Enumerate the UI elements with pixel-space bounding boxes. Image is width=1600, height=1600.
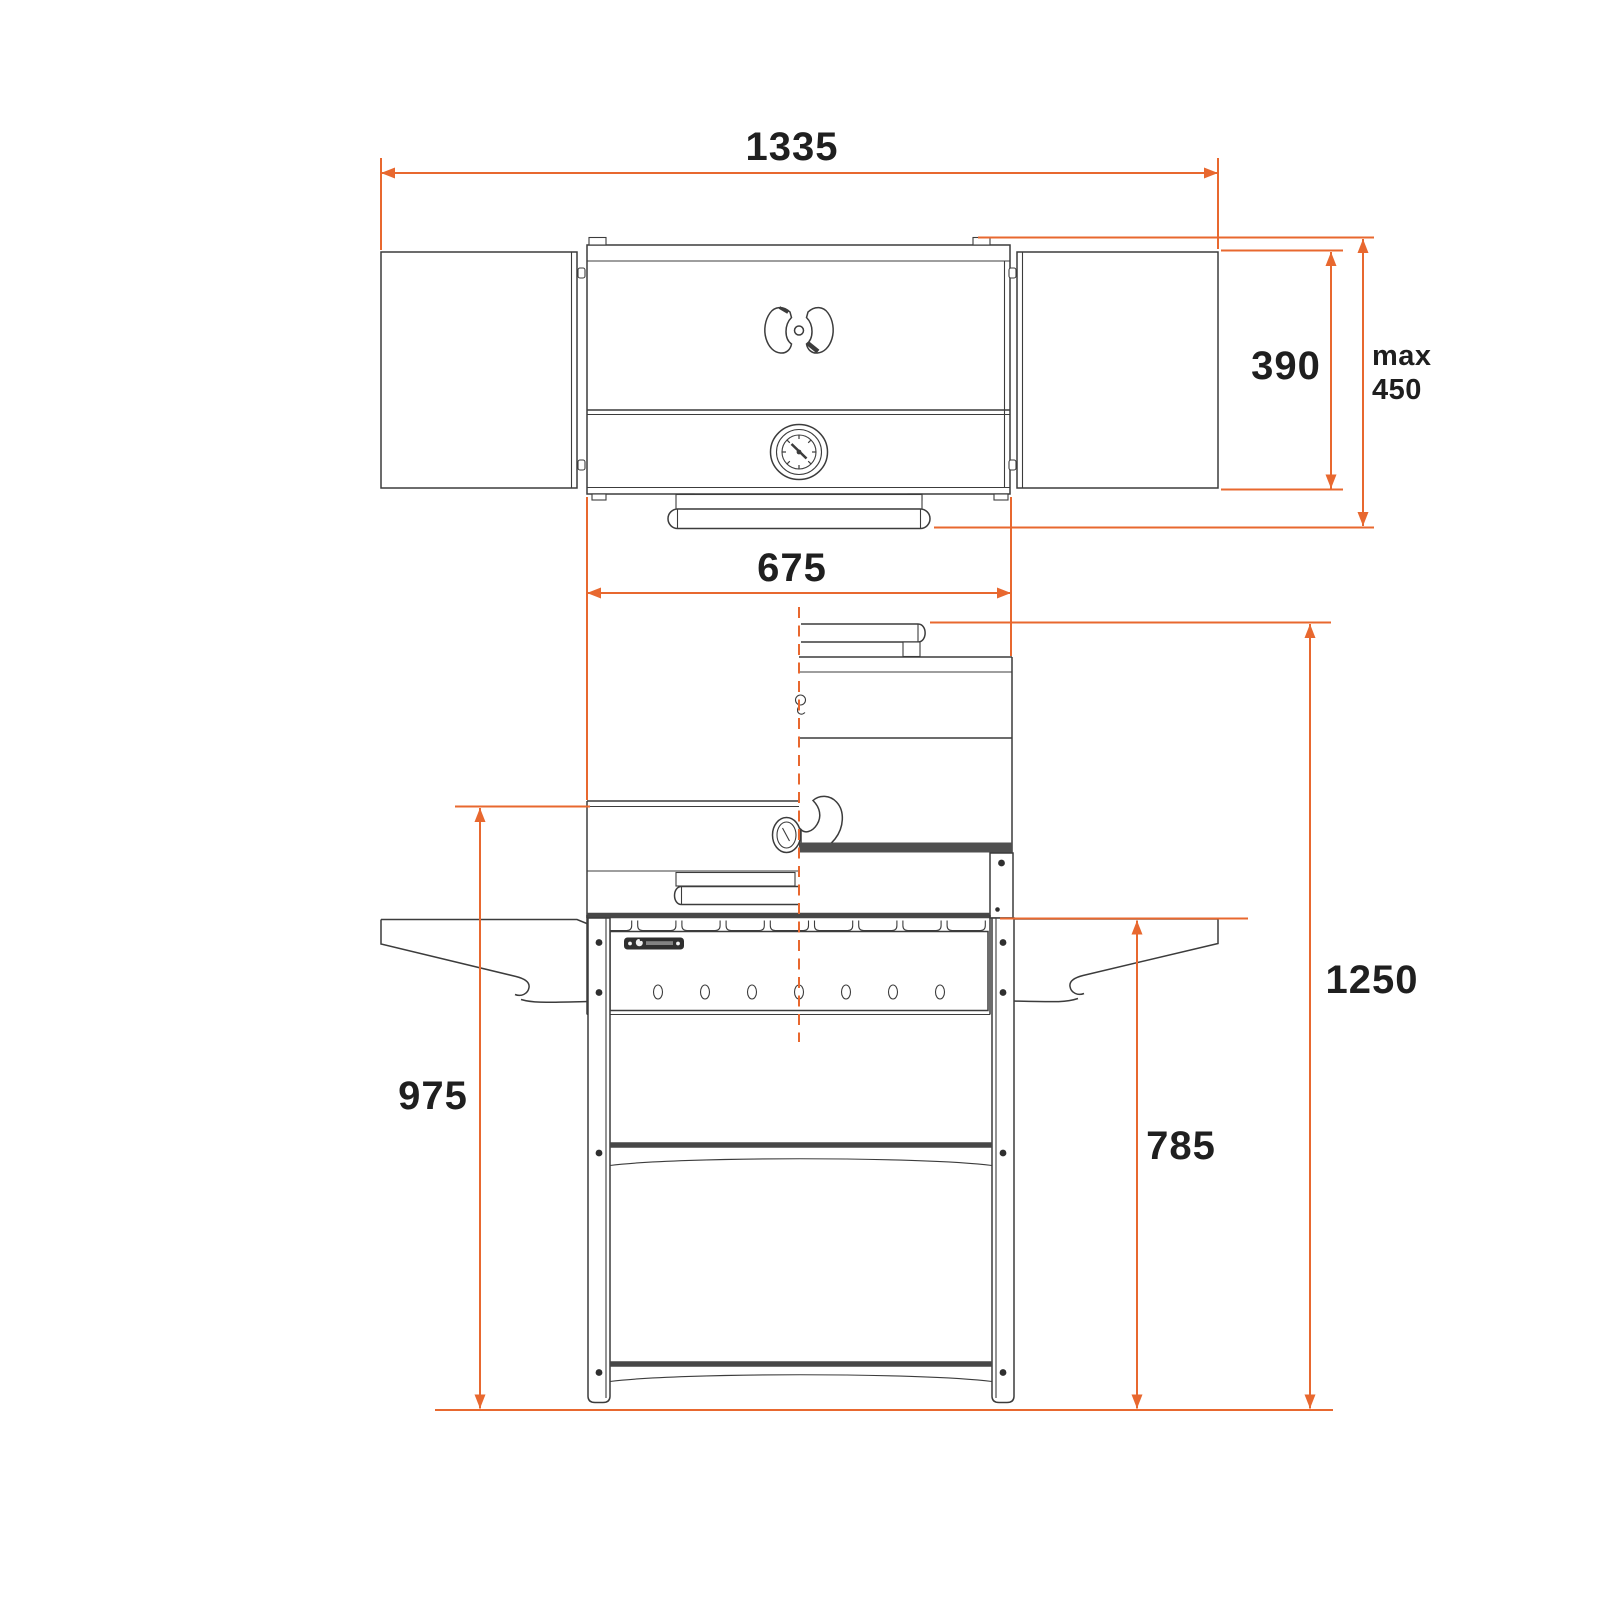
- side-shelf-right-folded: [1011, 919, 1218, 1002]
- open-lid-bottom-lip: [799, 843, 1012, 853]
- grill-dimension-diagram: 1335 390 max 450 675 975: [0, 0, 1600, 1600]
- thermometer-side-icon: [773, 818, 801, 853]
- dim-label-shelf-height: 785: [1146, 1124, 1216, 1168]
- dim-label-max-depth: 450: [1372, 374, 1422, 406]
- dim-label-max-prefix: max: [1372, 340, 1432, 372]
- side-table-right-top-view: [1009, 252, 1218, 488]
- dim-worktop-height: 975: [398, 807, 590, 1409]
- dim-total-width: 1335: [381, 125, 1218, 250]
- charcoal-rail-row: [594, 921, 986, 931]
- dim-label-total-width: 1335: [746, 125, 839, 169]
- closed-lid-left-half: [587, 801, 801, 918]
- dim-shelf-height: 785: [1000, 919, 1248, 1409]
- firebox-front: [587, 915, 990, 1015]
- brand-plate: [624, 938, 684, 950]
- front-handle-top-view: [668, 495, 930, 529]
- front-handle-bar: [675, 887, 798, 905]
- side-shelf-left-folded: [381, 920, 588, 1003]
- dimension-diagram-page: 1335 390 max 450 675 975: [0, 0, 1600, 1600]
- dim-body-depth: 390: [1221, 251, 1343, 490]
- dim-label-body-depth: 390: [1251, 344, 1321, 388]
- dim-label-body-width: 675: [757, 546, 827, 590]
- thermometer-icon: [771, 425, 828, 480]
- open-lid-damper-handle-icon: [801, 796, 842, 850]
- dim-label-max-height: 1250: [1326, 958, 1419, 1002]
- side-table-left-top-view: [381, 252, 585, 488]
- top-view: [381, 238, 1218, 529]
- dim-label-worktop-height: 975: [398, 1074, 468, 1118]
- open-lid-vent-knob-icon: [796, 695, 806, 714]
- open-lid-right-half: [796, 624, 1014, 918]
